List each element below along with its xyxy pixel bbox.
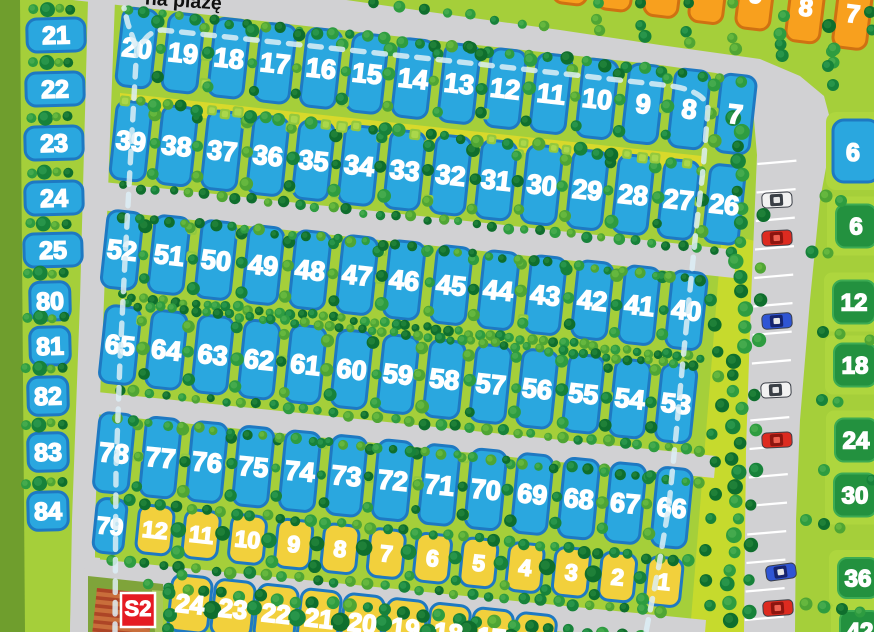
svg-text:11: 11 xyxy=(188,521,215,549)
svg-text:25: 25 xyxy=(39,236,68,265)
svg-text:37: 37 xyxy=(206,135,239,168)
svg-text:46: 46 xyxy=(388,264,421,297)
svg-text:50: 50 xyxy=(200,244,233,277)
svg-text:42: 42 xyxy=(847,618,874,632)
svg-text:60: 60 xyxy=(335,353,368,386)
svg-text:59: 59 xyxy=(382,358,415,391)
svg-text:51: 51 xyxy=(152,239,185,272)
svg-text:12: 12 xyxy=(141,516,169,544)
svg-text:27: 27 xyxy=(662,183,695,216)
svg-text:2: 2 xyxy=(610,563,625,590)
svg-text:52: 52 xyxy=(105,234,138,267)
svg-text:24: 24 xyxy=(843,427,870,454)
svg-text:54: 54 xyxy=(613,383,646,416)
svg-text:70: 70 xyxy=(469,474,502,507)
svg-text:47: 47 xyxy=(341,259,374,292)
svg-text:17: 17 xyxy=(475,621,507,632)
svg-text:57: 57 xyxy=(474,368,507,401)
svg-text:80: 80 xyxy=(36,287,65,316)
svg-text:56: 56 xyxy=(521,373,554,406)
svg-text:83: 83 xyxy=(34,438,63,467)
svg-text:18: 18 xyxy=(842,352,869,379)
svg-text:35: 35 xyxy=(297,144,330,177)
svg-text:61: 61 xyxy=(289,348,322,381)
svg-text:19: 19 xyxy=(389,611,421,632)
svg-text:15: 15 xyxy=(350,57,383,90)
svg-text:73: 73 xyxy=(330,460,363,493)
svg-text:10: 10 xyxy=(581,83,614,116)
svg-text:26: 26 xyxy=(708,188,741,221)
svg-text:33: 33 xyxy=(388,154,421,187)
svg-text:41: 41 xyxy=(623,289,656,322)
svg-text:63: 63 xyxy=(196,339,229,372)
svg-text:81: 81 xyxy=(36,332,65,361)
svg-text:36: 36 xyxy=(251,139,284,172)
svg-text:79: 79 xyxy=(95,512,124,542)
svg-text:23: 23 xyxy=(217,592,249,625)
svg-text:23: 23 xyxy=(40,129,69,158)
svg-text:10: 10 xyxy=(233,525,261,553)
svg-text:58: 58 xyxy=(428,363,461,396)
svg-text:68: 68 xyxy=(562,483,595,516)
svg-text:13: 13 xyxy=(442,67,475,100)
svg-text:21: 21 xyxy=(303,602,335,632)
svg-text:29: 29 xyxy=(571,174,604,207)
svg-text:11: 11 xyxy=(535,78,567,111)
svg-text:48: 48 xyxy=(294,254,327,287)
svg-text:17: 17 xyxy=(258,47,291,80)
svg-text:18: 18 xyxy=(212,42,245,75)
svg-text:72: 72 xyxy=(376,464,409,497)
svg-text:30: 30 xyxy=(842,482,869,509)
svg-text:7: 7 xyxy=(379,540,394,567)
svg-text:64: 64 xyxy=(150,334,183,367)
svg-text:S2: S2 xyxy=(125,596,152,621)
svg-text:21: 21 xyxy=(42,21,71,50)
svg-text:12: 12 xyxy=(841,289,868,316)
svg-text:76: 76 xyxy=(191,446,224,479)
svg-text:62: 62 xyxy=(242,344,275,377)
svg-text:28: 28 xyxy=(616,179,649,212)
svg-text:24: 24 xyxy=(40,184,69,213)
svg-text:32: 32 xyxy=(434,159,467,192)
svg-text:31: 31 xyxy=(480,164,513,197)
svg-text:84: 84 xyxy=(34,497,63,526)
svg-text:22: 22 xyxy=(41,75,70,104)
svg-text:3: 3 xyxy=(564,559,579,586)
svg-text:44: 44 xyxy=(482,274,515,307)
svg-text:82: 82 xyxy=(34,382,63,411)
svg-text:74: 74 xyxy=(283,455,316,488)
svg-text:71: 71 xyxy=(423,469,456,502)
svg-text:49: 49 xyxy=(247,249,280,282)
svg-text:6: 6 xyxy=(425,545,440,572)
svg-text:36: 36 xyxy=(845,565,872,592)
svg-text:6: 6 xyxy=(846,139,860,167)
svg-text:24: 24 xyxy=(174,588,207,621)
svg-text:20: 20 xyxy=(346,607,378,632)
svg-text:69: 69 xyxy=(516,478,549,511)
svg-text:38: 38 xyxy=(160,130,193,163)
svg-text:77: 77 xyxy=(144,442,177,475)
svg-text:9: 9 xyxy=(286,531,301,558)
svg-text:22: 22 xyxy=(260,597,292,630)
svg-text:30: 30 xyxy=(525,169,558,202)
svg-text:45: 45 xyxy=(435,269,468,302)
svg-text:67: 67 xyxy=(609,487,642,520)
svg-text:12: 12 xyxy=(489,72,522,105)
svg-text:14: 14 xyxy=(396,62,429,95)
svg-text:19: 19 xyxy=(166,37,199,70)
svg-text:18: 18 xyxy=(432,616,464,632)
svg-text:34: 34 xyxy=(343,149,376,182)
svg-text:6: 6 xyxy=(849,213,862,240)
svg-text:75: 75 xyxy=(237,451,270,484)
svg-text:55: 55 xyxy=(567,378,600,411)
svg-text:16: 16 xyxy=(304,52,337,85)
svg-text:43: 43 xyxy=(529,279,562,312)
svg-text:42: 42 xyxy=(576,284,609,317)
